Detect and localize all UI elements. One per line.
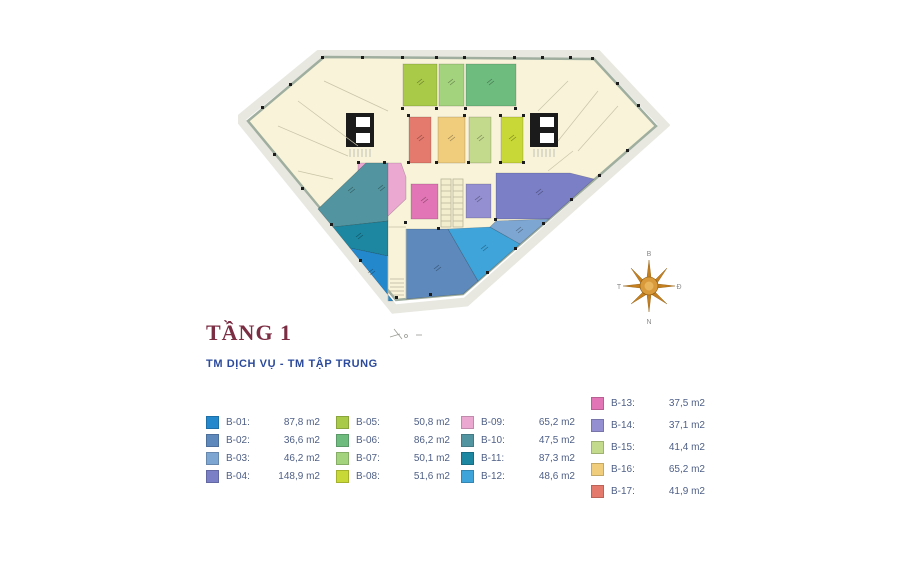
legend-swatch bbox=[591, 419, 604, 432]
legend-column-3: B-09: 65,2 m2 B-10: 47,5 m2 B-11: 87,3 m… bbox=[461, 413, 575, 485]
compass-north-label: B bbox=[647, 251, 652, 258]
floor-plan-drawing bbox=[238, 50, 670, 354]
legend-item: B-01: 87,8 m2 bbox=[206, 413, 320, 431]
legend-item: B-03: 46,2 m2 bbox=[206, 449, 320, 467]
legend-item: B-15: 41,4 m2 bbox=[591, 436, 705, 458]
legend-swatch bbox=[461, 452, 474, 465]
unit-b01 bbox=[350, 248, 393, 301]
legend-unit-area: 87,3 m2 bbox=[517, 453, 575, 464]
legend-unit-label: B-03: bbox=[226, 453, 262, 464]
legend-unit-label: B-02: bbox=[226, 435, 262, 446]
legend-item: B-04: 148,9 m2 bbox=[206, 467, 320, 485]
legend-unit-area: 50,1 m2 bbox=[392, 453, 450, 464]
legend-item: B-12: 48,6 m2 bbox=[461, 467, 575, 485]
legend-swatch bbox=[336, 416, 349, 429]
legend-swatch bbox=[336, 452, 349, 465]
page-subtitle: TM DỊCH VỤ - TM TẬP TRUNG bbox=[206, 358, 378, 370]
legend-unit-area: 36,6 m2 bbox=[262, 435, 320, 446]
legend-unit-area: 41,9 m2 bbox=[647, 486, 705, 497]
legend-unit-area: 51,6 m2 bbox=[392, 471, 450, 482]
legend-unit-area: 86,2 m2 bbox=[392, 435, 450, 446]
legend-swatch bbox=[206, 452, 219, 465]
legend-item: B-14: 37,1 m2 bbox=[591, 414, 705, 436]
legend-item: B-11: 87,3 m2 bbox=[461, 449, 575, 467]
legend-unit-label: B-13: bbox=[611, 398, 647, 409]
legend-swatch bbox=[461, 470, 474, 483]
compass-south-label: N bbox=[646, 319, 651, 326]
legend-unit-label: B-15: bbox=[611, 442, 647, 453]
unit-b05 bbox=[403, 64, 437, 106]
legend-item: B-02: 36,6 m2 bbox=[206, 431, 320, 449]
compass-rose: B Đ N T bbox=[616, 248, 682, 328]
legend-swatch bbox=[591, 441, 604, 454]
section-mark bbox=[390, 329, 422, 339]
legend-unit-area: 37,1 m2 bbox=[647, 420, 705, 431]
legend-column-1: B-01: 87,8 m2 B-02: 36,6 m2 B-03: 46,2 m… bbox=[206, 413, 320, 485]
legend-unit-label: B-09: bbox=[481, 417, 517, 428]
legend-unit-area: 47,5 m2 bbox=[517, 435, 575, 446]
legend-swatch bbox=[336, 470, 349, 483]
legend-swatch bbox=[461, 434, 474, 447]
legend-swatch bbox=[206, 470, 219, 483]
compass-east-label: Đ bbox=[676, 284, 681, 291]
legend-unit-label: B-08: bbox=[356, 471, 392, 482]
legend-item: B-10: 47,5 m2 bbox=[461, 431, 575, 449]
unit-b07 bbox=[439, 64, 464, 106]
legend-item: B-06: 86,2 m2 bbox=[336, 431, 450, 449]
legend-unit-area: 37,5 m2 bbox=[647, 398, 705, 409]
legend-unit-label: B-12: bbox=[481, 471, 517, 482]
legend-item: B-07: 50,1 m2 bbox=[336, 449, 450, 467]
legend-unit-label: B-10: bbox=[481, 435, 517, 446]
legend-item: B-13: 37,5 m2 bbox=[591, 392, 705, 414]
legend-swatch bbox=[206, 434, 219, 447]
legend-unit-label: B-04: bbox=[226, 471, 262, 482]
legend-unit-label: B-05: bbox=[356, 417, 392, 428]
legend-unit-label: B-11: bbox=[481, 453, 517, 464]
legend-swatch bbox=[591, 463, 604, 476]
legend-unit-label: B-01: bbox=[226, 417, 262, 428]
legend-unit-label: B-07: bbox=[356, 453, 392, 464]
legend-unit-label: B-14: bbox=[611, 420, 647, 431]
legend-column-2: B-05: 50,8 m2 B-06: 86,2 m2 B-07: 50,1 m… bbox=[336, 413, 450, 485]
legend-unit-area: 65,2 m2 bbox=[517, 417, 575, 428]
legend-item: B-09: 65,2 m2 bbox=[461, 413, 575, 431]
compass-west-label: T bbox=[617, 284, 622, 291]
legend-unit-area: 65,2 m2 bbox=[647, 464, 705, 475]
legend-swatch bbox=[591, 397, 604, 410]
compass-star-icon bbox=[623, 260, 675, 312]
page-title: TẦNG 1 bbox=[206, 320, 292, 346]
legend-item: B-08: 51,6 m2 bbox=[336, 467, 450, 485]
legend-unit-label: B-06: bbox=[356, 435, 392, 446]
legend-item: B-16: 65,2 m2 bbox=[591, 458, 705, 480]
legend-swatch bbox=[591, 485, 604, 498]
legend-unit-area: 87,8 m2 bbox=[262, 417, 320, 428]
legend-unit-area: 148,9 m2 bbox=[262, 471, 320, 482]
legend-unit-label: B-17: bbox=[611, 486, 647, 497]
legend-swatch bbox=[461, 416, 474, 429]
legend-item: B-05: 50,8 m2 bbox=[336, 413, 450, 431]
legend-unit-area: 41,4 m2 bbox=[647, 442, 705, 453]
legend-item: B-17: 41,9 m2 bbox=[591, 480, 705, 502]
legend-unit-area: 50,8 m2 bbox=[392, 417, 450, 428]
unit-b06 bbox=[466, 64, 516, 106]
legend-unit-area: 46,2 m2 bbox=[262, 453, 320, 464]
legend-swatch bbox=[336, 434, 349, 447]
floor-plan-page: B Đ N T TẦNG 1 TM DỊCH VỤ - TM TẬP TRUNG… bbox=[0, 0, 903, 563]
legend-unit-label: B-16: bbox=[611, 464, 647, 475]
legend-column-4: B-13: 37,5 m2 B-14: 37,1 m2 B-15: 41,4 m… bbox=[591, 392, 705, 502]
legend-unit-area: 48,6 m2 bbox=[517, 471, 575, 482]
legend-swatch bbox=[206, 416, 219, 429]
